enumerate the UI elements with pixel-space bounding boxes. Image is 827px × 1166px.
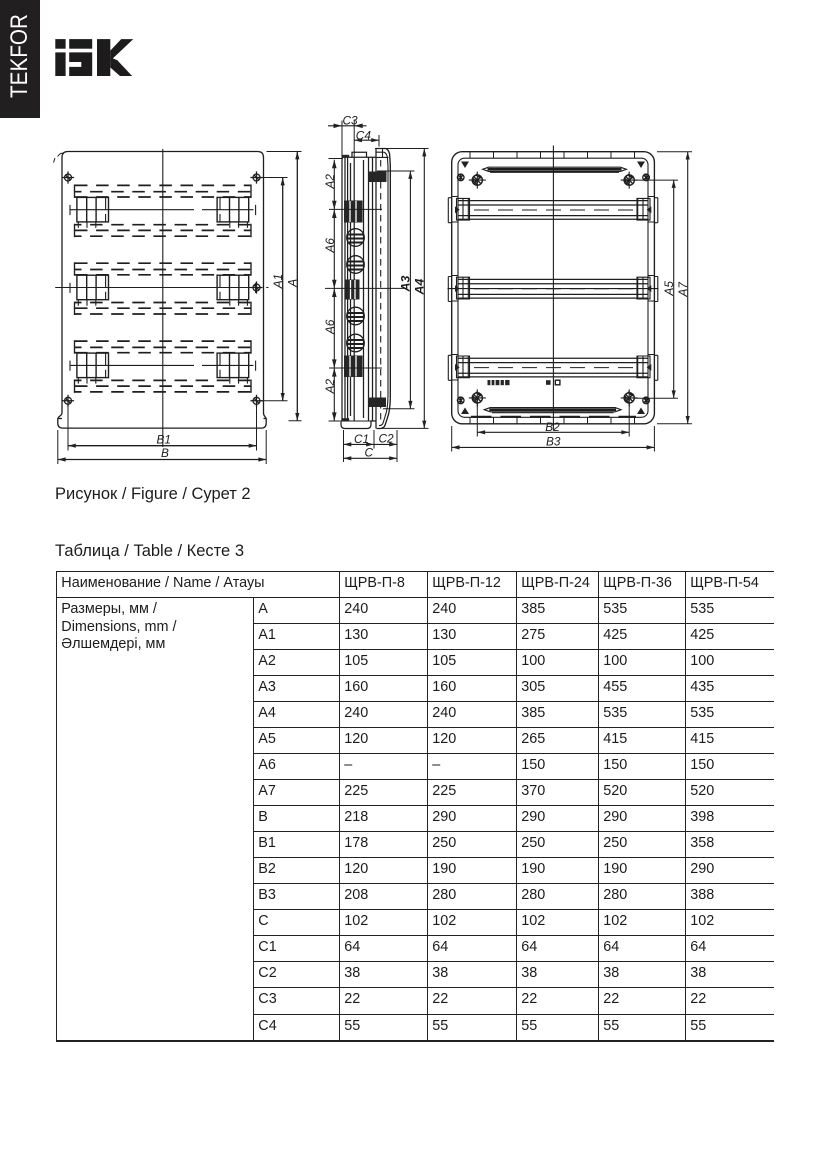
svg-text:A7: A7 bbox=[676, 282, 690, 298]
svg-text:B3: B3 bbox=[546, 435, 561, 449]
svg-text:A: A bbox=[285, 279, 299, 288]
svg-text:B2: B2 bbox=[545, 420, 560, 434]
svg-text:A5: A5 bbox=[662, 281, 676, 297]
svg-text:C1: C1 bbox=[354, 432, 369, 446]
svg-text:C2: C2 bbox=[379, 432, 395, 446]
svg-text:TEKFOR: TEKFOR bbox=[6, 14, 33, 98]
svg-text:B1: B1 bbox=[157, 433, 171, 447]
svg-text:A6: A6 bbox=[323, 319, 337, 335]
svg-text:C: C bbox=[365, 446, 374, 460]
svg-text:A3: A3 bbox=[399, 276, 413, 293]
svg-text:B: B bbox=[161, 446, 169, 460]
svg-text:A2: A2 bbox=[323, 174, 337, 190]
svg-text:A2: A2 bbox=[323, 379, 337, 395]
svg-text:C4: C4 bbox=[356, 128, 372, 142]
svg-text:C3: C3 bbox=[343, 114, 359, 128]
svg-text:A6: A6 bbox=[323, 238, 337, 254]
svg-text:A1: A1 bbox=[271, 274, 285, 289]
svg-text:A4: A4 bbox=[413, 279, 427, 296]
